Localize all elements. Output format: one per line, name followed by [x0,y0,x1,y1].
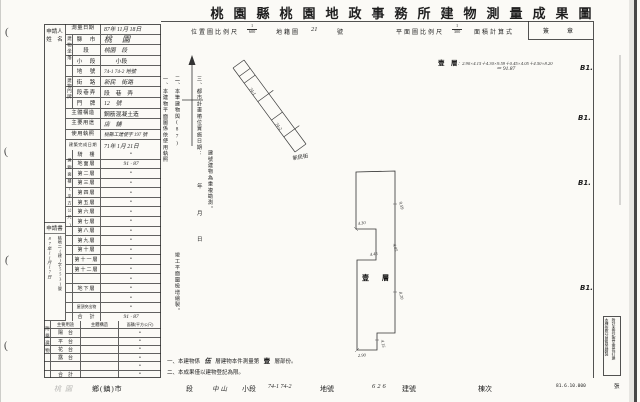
corner-note-left: 本棟依照分層負責繪製 [605,318,610,374]
floor-label: 第四層 [73,188,101,197]
floor-row: 第八層• [66,227,161,237]
floor-label: 第三層 [73,179,101,188]
attached-building-rows: 主要用途 主體構造 面積(平方公尺) 陽 台• 平 台• 花 台• 露 台• •… [44,321,161,378]
row-label: 小 段 [73,56,101,66]
floor-row: 第四層• [66,188,161,198]
bottom-note-1-hand: 伍 [204,358,211,365]
floor-row: 騎 樓• [66,150,161,160]
footer-form-number: 81.6.10.000 [556,384,586,389]
group-label-door: 建物門牌 [67,78,73,108]
footer-parcel-label: 地號 [320,384,334,394]
floor-label: 第六層 [73,207,101,216]
floor-label: 地面層 [73,160,101,169]
cadastral-map-unit: 號 [337,27,345,36]
signature-label: 簽 章 [543,26,579,35]
floor-value: • [101,228,161,234]
bottom-note-1: 一、本建物係 伍 層建物本件測量第 壹 層部份。 [167,355,297,365]
note-3-month: 月 [197,209,203,217]
floor-value: • [101,180,161,186]
plan-dim-left-step: 4.30 [357,220,366,226]
attached-row: 花 台• [44,346,161,354]
floor-row: 地下層• [66,284,161,294]
scan-streak [619,55,621,205]
floor-value: 91 · 87 [101,161,161,167]
group-label-attached: 附屬建物 [45,326,51,376]
floor-label [73,293,101,302]
footer-township-label: 鄉(鎮)市 [92,384,123,394]
floor-label: 第七層 [73,217,101,226]
footer-city-hand: 桃園 [54,384,76,394]
location-sketch: 74-1 74-2 新民街 [225,56,343,164]
row-label: 街 路 [73,77,101,87]
location-parcel-a: 74-1 [248,87,257,97]
margin-mark: ( [3,340,8,352]
table-row-door-number: 門 牌12 號 [66,98,161,109]
attached-value: • [119,363,161,369]
attached-label: 陽 台 [51,329,81,336]
attached-value: • [119,338,161,344]
attached-value: • [119,346,161,352]
attached-label [51,362,81,369]
bottom-note-1-post: 層部份。 [275,359,297,365]
table-row-section: 段桃園 段 [66,45,161,56]
note-1-continued: 竣工平面圖檢增繪製。 [174,252,181,364]
floor-value: • [101,218,161,224]
plan-dim-bottom: 2.90 [358,352,367,358]
applicant-cell: 申請人 姓 名 [44,24,66,223]
floor-value: • [101,256,161,262]
row-value: 桃 園 [101,34,161,45]
north-arrow-icon [180,54,208,150]
application-receipt-cell: 申請書 87年11月17日 桃地二(建)字5531號 [44,223,66,321]
floor-label: 屋頂突出物 [73,303,101,312]
row-label: 門 牌 [73,98,101,108]
row-label: 使用執照 [66,130,101,140]
table-row-use: 主要用途店 舖 [66,119,161,130]
corner-note-right: 附註未登記壹至壹長打建 [612,318,617,374]
floor-value: • [101,237,161,243]
attached-row: 陽 台• [44,329,161,337]
floor-label: 第二層 [73,169,101,178]
floor-value: • [101,190,161,196]
receipt-number: 桃地二(建)字5531號 [57,236,63,318]
footer-parcel-hand: 74-1 74-2 [268,384,292,390]
note-3-day: 日 [197,235,203,243]
attached-structure-cell [81,354,119,361]
bottom-note-1-mid: 層建物本件測量第 [215,359,259,365]
floor-value: • [101,247,161,253]
receipt-date: 87年11月17日 [46,236,52,318]
building-info-rows: 測量日期87年 11月 18日 縣 市桃 園 段桃園 段 小 段 小段 地 號7… [66,24,161,150]
floor-row: • [66,293,161,303]
plan-dim-right-low: 8.20 [398,291,405,300]
floor-row: 第十一層• [66,255,161,265]
row-label: 段巷弄 [73,87,101,97]
floor-value: 91 · 87 [101,314,161,320]
floor-value: • [101,209,161,215]
table-row-subsection: 小 段 小段 [66,56,161,67]
floor-label: 第十二層 [73,265,101,274]
row-value: 店 舖 [101,119,161,128]
floor-row: 第七層• [66,217,161,227]
note-2-continued: 建號建物為重複勘測。 [207,150,214,240]
row-label: 主體構造 [66,109,101,119]
b1-mark: B1. [580,64,593,72]
attached-header-structure: 主體構造 [81,321,119,328]
plan-scale-denominator: 300 [454,30,460,35]
row-label: 地 號 [73,66,101,76]
area-formula: 壹 層：2.90×4.15＋4.30×9.59＋0.45×4.05＋4.50×8… [438,52,593,70]
row-value: 段 巷 弄 [101,88,161,97]
floor-label: 第八層 [73,227,101,236]
row-value: 桃園 段 [101,45,161,54]
location-street-label: 新民街 [292,151,309,162]
cadastral-map-label: 地籍圖 [276,27,300,36]
floor-label: 第十一層 [73,255,101,264]
attached-label: 平 台 [51,338,81,345]
footer-sheet-label: 張 [614,382,620,390]
scan-edge-bar [634,0,637,402]
floor-row: 第二層• [66,169,161,179]
row-label: 建築完成日期 [66,140,101,150]
plan-dim-right-top: 9.59 [398,201,405,211]
plan-scale-fraction: 1 300 [452,24,462,35]
attached-header-use: 主要用途 [51,321,81,328]
applicant-label-line1: 申請人 [44,27,65,35]
floor-label: 地下層 [73,284,101,293]
attached-structure-cell [81,371,119,378]
attached-label: 花 台 [51,346,81,353]
attached-row: • [44,362,161,370]
floor-row-total: 合 計91 · 87 [66,313,161,322]
floor-area-rows: 騎 樓• 地面層91 · 87 第二層• 第三層• 第四層• 第五層• 第六層•… [66,150,161,321]
floor-row: 第三層• [66,179,161,189]
cadastral-map-value: 21 [311,26,318,33]
plan-dim-notch-bottom: 4.45 [369,251,378,257]
attached-structure-cell [81,329,119,336]
row-value: 74-1 74-2 地號 [101,68,161,75]
note-3-year: 年 [197,182,203,190]
floor-value: • [101,199,161,205]
attached-value: • [119,355,161,361]
row-label: 縣 市 [73,35,101,45]
floor-value: • [101,295,161,301]
table-row-structure: 主體構造鋼筋混凝土造 [66,109,161,120]
area-formula-label: 面積計算式 [474,27,514,36]
floor-value: • [101,170,161,176]
signature-box: 簽 章 [528,21,593,40]
floor-row: 第十二層• [66,265,161,275]
bottom-note-2: 二、本成果僅以建物登記為限。 [167,368,244,376]
location-scale-fraction: 1 600 [247,24,257,35]
row-value: 小段 [101,56,161,65]
attached-header-area: 面積(平方公尺) [119,322,161,328]
plan-floor-label: 壹 層 [362,273,392,282]
floor-label: 第九層 [73,236,101,245]
attached-row: 露 台• [44,354,161,362]
margin-mark: ( [3,146,8,158]
plan-dim-notch-right: 4.05 [392,243,399,253]
row-value: 新民 街路 [101,77,161,86]
plan-scale-label: 平面圖比例尺 [396,27,444,36]
row-value: 12 號 [101,98,161,107]
floor-value: • [101,266,161,272]
floor-row: 第六層• [66,207,161,217]
row-value: 桃縣工建使字 197 號 [101,131,161,138]
bottom-note-1-bold: 壹 [264,358,271,365]
row-value: 鋼筋混凝土造 [101,109,161,118]
floor-label: 第十層 [73,246,101,255]
table-row-completion-date: 建築完成日期71年 1月 21日 [66,140,161,150]
floor-label: 合 計 [73,313,101,322]
attached-structure-cell [81,346,119,353]
floor-row: 屋頂突出物• [66,303,161,313]
floor-row: • [66,274,161,284]
floor-value: • [101,285,161,291]
scanned-survey-sheet: 桃園縣桃園地政事務所建物測量成果圖 位置圖比例尺 1 600 地籍圖 21 號 … [0,0,640,402]
location-scale-label: 位置圖比例尺 [191,27,239,36]
plan-dim-bottom-step: 4.15 [380,339,386,348]
bottom-note-1-pre: 一、本建物係 [167,359,200,365]
table-row-parcel: 地 號74-1 74-2 地號 [66,66,161,77]
floor-plan: 9.59 4.30 4.05 4.45 8.20 4.15 2.90 壹 層 [348,164,463,364]
attached-header-row: 主要用途 主體構造 面積(平方公尺) [44,321,161,329]
floor-row: 第五層• [66,198,161,208]
location-scale-denominator: 600 [249,30,255,35]
footer-unit-label: 棟次 [478,384,492,394]
table-row-license: 使用執照桃縣工建使字 197 號 [66,130,161,141]
table-row-street: 街 路新民 街路 [66,77,161,88]
footer-section-label: 段 [186,384,193,394]
margin-mark: ( [4,254,9,266]
floor-value: • [101,151,161,157]
footer-subsection-label: 小段 [242,384,256,394]
row-value: 71年 1月 21日 [101,141,161,150]
b1-mark: B1. [580,284,593,292]
group-label-situs: 建物坐落 [67,36,73,76]
attached-row: 平 台• [44,338,161,346]
group-label-building-area: 建物面積(平方公尺) [67,158,73,316]
attached-value: • [119,371,161,377]
table-row-lane: 段巷弄段 巷 弄 [66,87,161,98]
attached-label: 露 台 [51,354,81,361]
row-label: 主要用途 [66,119,101,129]
floor-label: 騎 樓 [73,150,101,159]
floor-label: 第五層 [73,198,101,207]
floor-row: 第十層• [66,246,161,256]
applicant-label-line2: 姓 名 [44,35,65,43]
table-row-county: 縣 市桃 園 [66,35,161,46]
application-label: 申請書 [44,223,65,234]
formula-result: ＝ 91.87 [496,64,515,72]
b1-mark: B1. [578,114,591,122]
floor-label [73,274,101,283]
floor-row: 地面層91 · 87 [66,160,161,170]
floor-value: • [101,304,161,310]
note-1: 一、本建物平面圖係依使用執照 [162,76,169,266]
formula-floor: 壹 層 [438,60,458,67]
scan-left-edge [0,0,1,402]
attached-value: • [119,330,161,336]
b1-mark: B1. [578,179,591,187]
row-label: 測量日期 [66,24,101,34]
footer-building-hand: 626 [372,383,388,390]
floor-row: 第九層• [66,236,161,246]
footer-building-label: 建號 [402,384,416,394]
page-title: 桃園縣桃園地政事務所建物測量成果圖 [196,3,616,22]
margin-mark: ( [5,26,9,38]
floor-value: • [101,276,161,282]
row-label: 段 [73,45,101,55]
attached-row-total: 合 計• [44,371,161,378]
sheet-right-border [593,21,594,378]
row-value: 87年 11月 18日 [101,24,161,33]
attached-label: 合 計 [51,371,81,378]
attached-structure-cell [81,338,119,345]
location-parcel-b: 74-2 [274,122,283,132]
footer-subsection-hand: 中山 [212,383,229,393]
attached-structure-cell [81,362,119,369]
